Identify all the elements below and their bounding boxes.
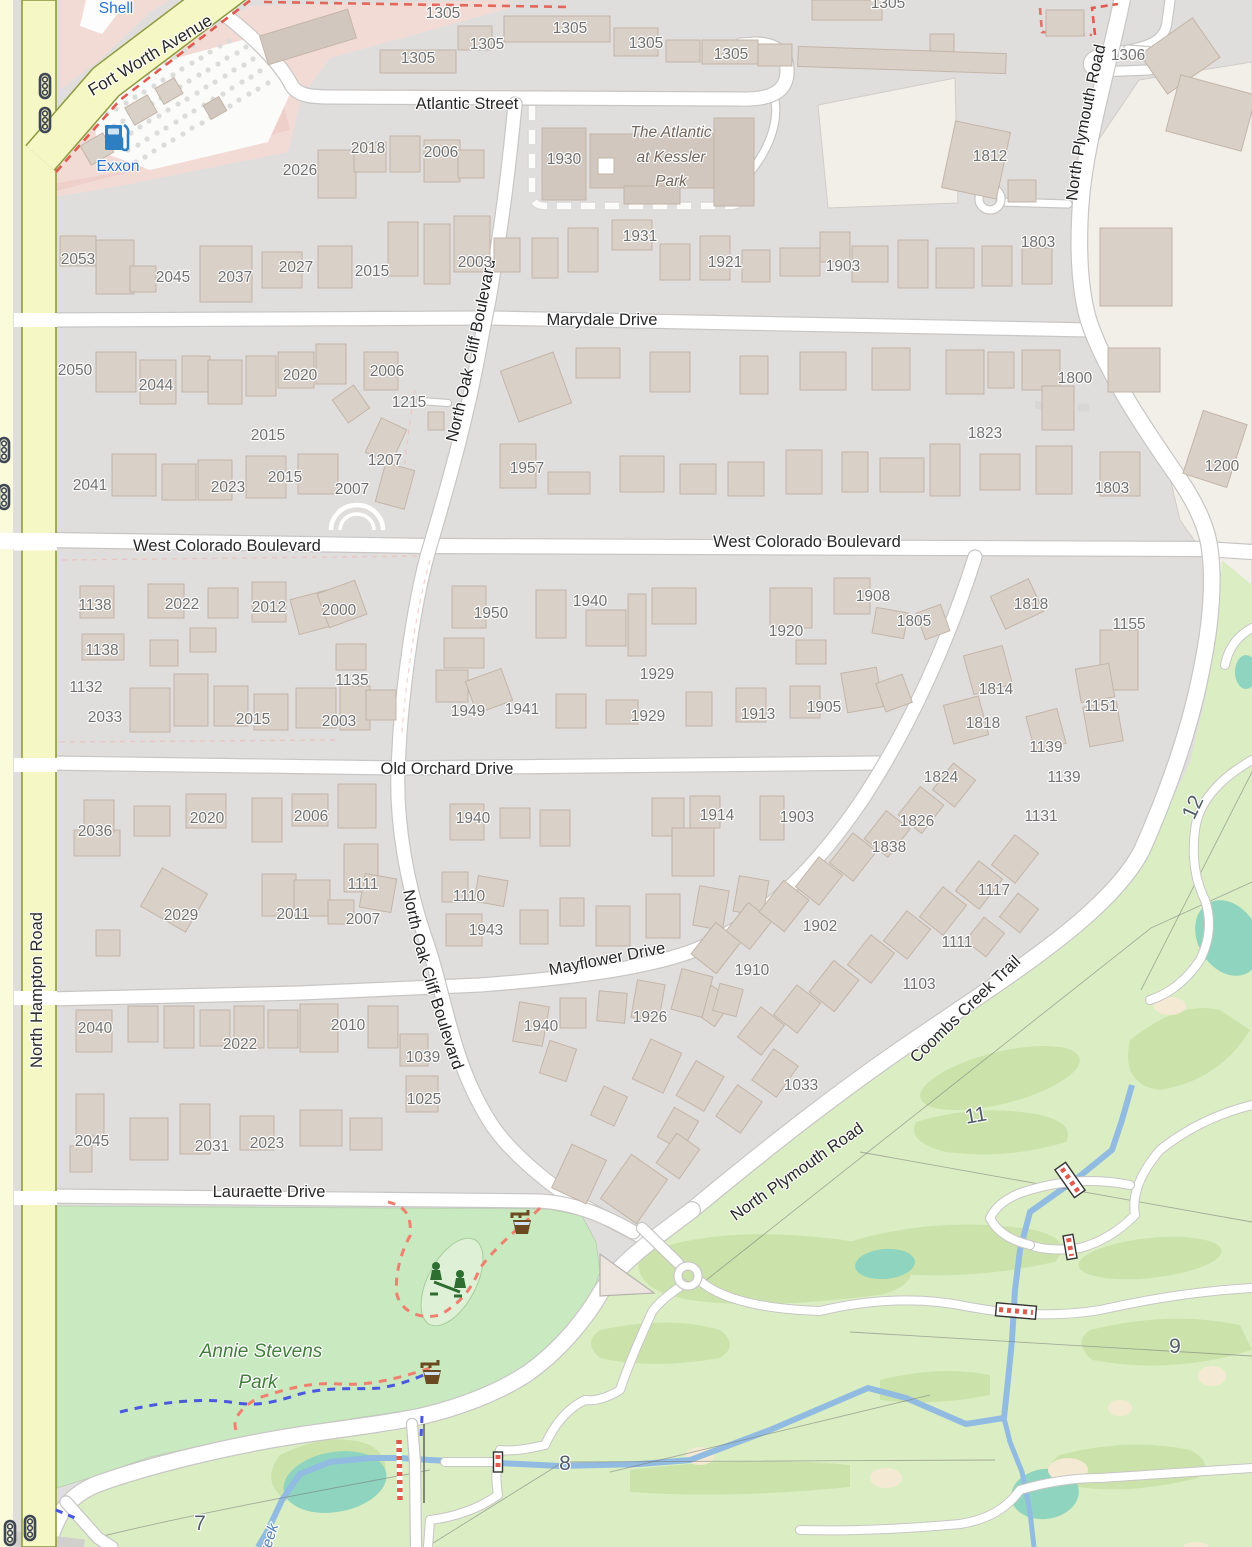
svg-text:1305: 1305 xyxy=(629,35,663,52)
svg-text:1139: 1139 xyxy=(1047,769,1080,786)
svg-text:1803: 1803 xyxy=(1021,234,1055,251)
svg-text:2020: 2020 xyxy=(283,367,318,384)
svg-text:1940: 1940 xyxy=(524,1018,559,1035)
svg-text:2010: 2010 xyxy=(331,1017,366,1034)
svg-text:2033: 2033 xyxy=(88,709,122,726)
svg-text:1110: 1110 xyxy=(453,888,486,905)
svg-text:1824: 1824 xyxy=(924,769,959,786)
svg-text:Exxon: Exxon xyxy=(96,158,139,175)
svg-text:1805: 1805 xyxy=(897,613,931,630)
svg-text:West Colorado Boulevard: West Colorado Boulevard xyxy=(713,533,901,551)
svg-text:2023: 2023 xyxy=(250,1135,284,1152)
svg-text:1305: 1305 xyxy=(714,46,748,63)
svg-text:1943: 1943 xyxy=(469,922,503,939)
svg-text:1305: 1305 xyxy=(426,5,460,22)
svg-text:2022: 2022 xyxy=(165,596,199,613)
svg-text:2007: 2007 xyxy=(346,911,380,928)
svg-text:1138: 1138 xyxy=(78,597,111,614)
svg-text:1949: 1949 xyxy=(451,703,485,720)
svg-text:at Kessler: at Kessler xyxy=(637,149,707,166)
svg-text:2037: 2037 xyxy=(218,269,252,286)
svg-text:2020: 2020 xyxy=(190,810,225,827)
svg-text:2029: 2029 xyxy=(164,907,198,924)
svg-text:2050: 2050 xyxy=(58,362,93,379)
svg-text:1941: 1941 xyxy=(505,701,539,718)
svg-text:2003: 2003 xyxy=(322,713,356,730)
svg-text:1151: 1151 xyxy=(1084,698,1117,715)
svg-text:2044: 2044 xyxy=(139,377,174,394)
svg-text:1803: 1803 xyxy=(1095,480,1129,497)
svg-text:The Atlantic: The Atlantic xyxy=(630,124,712,141)
svg-text:Park: Park xyxy=(655,173,688,190)
svg-text:1920: 1920 xyxy=(769,623,804,640)
svg-text:Old Orchard Drive: Old Orchard Drive xyxy=(381,760,514,778)
svg-text:1305: 1305 xyxy=(553,20,587,37)
svg-text:1132: 1132 xyxy=(69,679,102,696)
svg-text:Marydale Drive: Marydale Drive xyxy=(547,311,658,329)
svg-text:1039: 1039 xyxy=(406,1049,440,1066)
svg-text:2006: 2006 xyxy=(294,808,328,825)
svg-text:2036: 2036 xyxy=(78,823,112,840)
svg-text:1926: 1926 xyxy=(633,1009,667,1026)
svg-text:1913: 1913 xyxy=(741,706,775,723)
svg-text:1135: 1135 xyxy=(335,672,368,689)
svg-text:1200: 1200 xyxy=(1205,458,1240,475)
svg-text:1931: 1931 xyxy=(623,228,657,245)
svg-text:11: 11 xyxy=(963,1102,988,1128)
svg-text:2007: 2007 xyxy=(335,481,369,498)
svg-text:1800: 1800 xyxy=(1058,370,1093,387)
svg-text:1111: 1111 xyxy=(347,876,378,893)
svg-text:2015: 2015 xyxy=(355,263,389,280)
svg-text:2006: 2006 xyxy=(424,144,458,161)
svg-text:1940: 1940 xyxy=(573,593,608,610)
svg-text:1117: 1117 xyxy=(978,882,1010,899)
svg-text:1905: 1905 xyxy=(807,699,841,716)
svg-text:1940: 1940 xyxy=(456,810,491,827)
svg-text:1215: 1215 xyxy=(392,394,426,411)
svg-text:2027: 2027 xyxy=(279,259,313,276)
svg-text:1305: 1305 xyxy=(470,36,504,53)
svg-text:1033: 1033 xyxy=(784,1077,818,1094)
svg-text:1138: 1138 xyxy=(85,642,118,659)
svg-text:1929: 1929 xyxy=(631,708,665,725)
svg-text:1929: 1929 xyxy=(640,666,674,683)
svg-text:2011: 2011 xyxy=(276,906,309,923)
svg-text:1914: 1914 xyxy=(700,807,735,824)
svg-text:Lauraette Drive: Lauraette Drive xyxy=(213,1183,326,1201)
svg-text:West Colorado Boulevard: West Colorado Boulevard xyxy=(133,537,321,555)
svg-text:1305: 1305 xyxy=(401,50,435,67)
svg-text:2015: 2015 xyxy=(251,427,285,444)
svg-text:1025: 1025 xyxy=(407,1091,441,1108)
svg-text:1306: 1306 xyxy=(1111,47,1145,64)
svg-text:North Hampton Road: North Hampton Road xyxy=(28,912,46,1068)
svg-text:2023: 2023 xyxy=(211,479,245,496)
svg-text:1139: 1139 xyxy=(1029,739,1062,756)
svg-text:2053: 2053 xyxy=(61,251,95,268)
svg-text:2000: 2000 xyxy=(322,602,357,619)
svg-text:1826: 1826 xyxy=(900,813,934,830)
svg-text:1930: 1930 xyxy=(547,151,582,168)
svg-text:1111: 1111 xyxy=(941,934,972,951)
svg-text:1908: 1908 xyxy=(856,588,890,605)
svg-text:9: 9 xyxy=(1169,1335,1181,1358)
svg-text:Park: Park xyxy=(238,1372,279,1393)
svg-text:1103: 1103 xyxy=(902,976,935,993)
svg-text:2045: 2045 xyxy=(156,269,190,286)
svg-text:1207: 1207 xyxy=(368,452,402,469)
svg-text:8: 8 xyxy=(559,1452,571,1475)
svg-text:7: 7 xyxy=(194,1512,206,1535)
svg-text:1957: 1957 xyxy=(510,460,544,477)
svg-text:1814: 1814 xyxy=(979,681,1014,698)
svg-text:1823: 1823 xyxy=(968,425,1002,442)
svg-text:1950: 1950 xyxy=(474,605,509,622)
svg-text:2015: 2015 xyxy=(236,711,270,728)
svg-text:1921: 1921 xyxy=(708,254,742,271)
svg-text:2022: 2022 xyxy=(223,1036,257,1053)
svg-text:1131: 1131 xyxy=(1024,808,1057,825)
svg-text:Shell: Shell xyxy=(99,0,133,17)
svg-text:2015: 2015 xyxy=(268,469,302,486)
svg-text:1903: 1903 xyxy=(826,258,860,275)
svg-text:1305: 1305 xyxy=(871,0,905,12)
svg-text:1818: 1818 xyxy=(966,715,1000,732)
svg-text:Atlantic Street: Atlantic Street xyxy=(416,95,519,113)
svg-text:1838: 1838 xyxy=(872,839,906,856)
svg-text:2012: 2012 xyxy=(252,599,286,616)
svg-text:2040: 2040 xyxy=(78,1020,113,1037)
svg-text:Annie Stevens: Annie Stevens xyxy=(199,1341,323,1362)
svg-text:1902: 1902 xyxy=(803,918,837,935)
svg-text:1155: 1155 xyxy=(1112,616,1145,633)
svg-text:2041: 2041 xyxy=(73,477,107,494)
svg-text:1812: 1812 xyxy=(973,148,1007,165)
svg-text:2018: 2018 xyxy=(351,140,385,157)
svg-text:1818: 1818 xyxy=(1014,596,1048,613)
svg-text:2031: 2031 xyxy=(195,1138,229,1155)
svg-text:2003: 2003 xyxy=(458,254,492,271)
svg-text:2026: 2026 xyxy=(283,162,317,179)
svg-text:1910: 1910 xyxy=(735,962,770,979)
svg-text:2006: 2006 xyxy=(370,363,404,380)
svg-text:1903: 1903 xyxy=(780,809,814,826)
svg-text:2045: 2045 xyxy=(75,1133,109,1150)
